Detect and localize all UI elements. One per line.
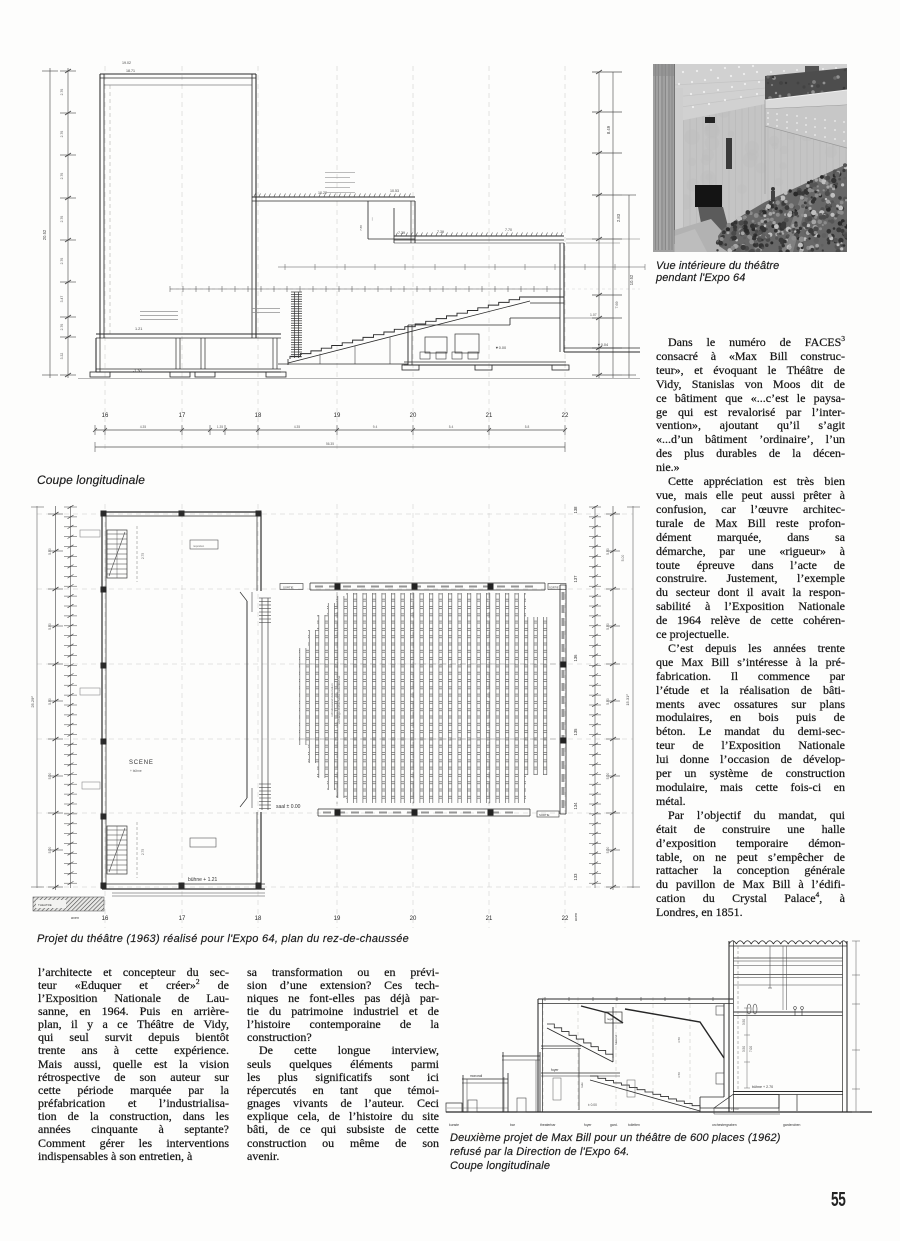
svg-text:138: 138 bbox=[573, 506, 578, 514]
svg-text:5.00: 5.00 bbox=[621, 555, 625, 562]
svg-text:3.50: 3.50 bbox=[742, 1046, 746, 1052]
svg-text:20: 20 bbox=[410, 916, 417, 922]
svg-text:5.00: 5.00 bbox=[48, 623, 52, 630]
svg-text:19: 19 bbox=[334, 413, 341, 419]
svg-text:9.4: 9.4 bbox=[373, 425, 378, 429]
svg-text:5.8: 5.8 bbox=[525, 425, 530, 429]
svg-text:5.00: 5.00 bbox=[48, 698, 52, 705]
svg-text:1.21: 1.21 bbox=[135, 327, 142, 331]
svg-text:orchestergraben: orchestergraben bbox=[712, 1123, 737, 1127]
svg-text:bühne + 1.21: bühne + 1.21 bbox=[188, 877, 218, 883]
svg-text:18: 18 bbox=[255, 916, 262, 922]
svg-text:SORTIE: SORTIE bbox=[539, 813, 549, 817]
svg-text:requisiten: requisiten bbox=[193, 544, 205, 548]
svg-text:25.29²: 25.29² bbox=[30, 696, 35, 708]
svg-text:135: 135 bbox=[573, 728, 578, 736]
svg-text:monorail: monorail bbox=[470, 1074, 483, 1078]
svg-text:5.00: 5.00 bbox=[606, 847, 610, 854]
svg-text:+ bühne: + bühne bbox=[130, 769, 142, 773]
svg-text:SORTIE: SORTIE bbox=[283, 586, 293, 590]
svg-text:17: 17 bbox=[179, 916, 186, 922]
svg-text:talw: talw bbox=[580, 1082, 584, 1088]
svg-text:4.35: 4.35 bbox=[140, 425, 146, 429]
svg-text:5.00: 5.00 bbox=[606, 773, 610, 780]
svg-text:56.35: 56.35 bbox=[326, 442, 334, 446]
svg-text:18.71: 18.71 bbox=[126, 69, 135, 73]
svg-text:foyer: foyer bbox=[584, 1123, 592, 1127]
svg-text:kunste: kunste bbox=[449, 1123, 459, 1127]
svg-text:1.07: 1.07 bbox=[590, 313, 597, 317]
svg-text:8.49: 8.49 bbox=[606, 125, 611, 134]
svg-text:10.52: 10.52 bbox=[629, 274, 634, 285]
svg-text:± 0.00: ± 0.00 bbox=[588, 1103, 597, 1107]
svg-text:falwand: falwand bbox=[614, 1035, 618, 1045]
svg-text:5.00: 5.00 bbox=[606, 698, 610, 705]
svg-text:2.75: 2.75 bbox=[141, 849, 145, 855]
svg-text:SORTIE: SORTIE bbox=[549, 586, 559, 590]
svg-text:2.75: 2.75 bbox=[141, 553, 145, 559]
svg-text:22: 22 bbox=[562, 413, 569, 419]
svg-text:axen: axen bbox=[71, 916, 79, 920]
svg-text:19: 19 bbox=[334, 916, 341, 922]
svg-text:20: 20 bbox=[410, 413, 417, 419]
svg-text:7.39: 7.39 bbox=[398, 231, 405, 235]
svg-text:5.00: 5.00 bbox=[48, 773, 52, 780]
svg-text:133: 133 bbox=[573, 873, 578, 881]
svg-text:THEATRE: THEATRE bbox=[38, 903, 52, 907]
svg-text:4.35: 4.35 bbox=[294, 425, 300, 429]
svg-text:17: 17 bbox=[179, 413, 186, 419]
svg-text:theaterbar: theaterbar bbox=[540, 1123, 556, 1127]
svg-text:7.88: 7.88 bbox=[359, 225, 363, 231]
svg-text:2.76: 2.76 bbox=[60, 173, 64, 180]
svg-text:20.52: 20.52 bbox=[42, 229, 47, 240]
svg-text:5.4: 5.4 bbox=[449, 425, 454, 429]
svg-text:10.53: 10.53 bbox=[390, 189, 399, 193]
svg-text:2.76: 2.76 bbox=[60, 216, 64, 223]
svg-text:toiletten: toiletten bbox=[628, 1123, 640, 1127]
svg-text:gard.: gard. bbox=[610, 1123, 618, 1127]
svg-text:axen: axen bbox=[574, 913, 578, 921]
svg-text:10.22: 10.22 bbox=[318, 191, 327, 195]
svg-text:▼0.04: ▼0.04 bbox=[597, 343, 608, 347]
svg-text:15.31²: 15.31² bbox=[625, 694, 630, 706]
svg-text:7.70: 7.70 bbox=[505, 228, 512, 232]
svg-text:▼0.00: ▼0.00 bbox=[495, 346, 506, 350]
svg-text:19.02: 19.02 bbox=[122, 61, 131, 65]
svg-text:5.00: 5.00 bbox=[48, 847, 52, 854]
svg-text:7.69: 7.69 bbox=[615, 302, 619, 309]
svg-text:3.50: 3.50 bbox=[742, 1019, 746, 1025]
svg-text:7.39: 7.39 bbox=[437, 230, 444, 234]
svg-text:21: 21 bbox=[486, 413, 493, 419]
svg-text:5.00: 5.00 bbox=[48, 548, 52, 555]
svg-text:3.50: 3.50 bbox=[677, 1072, 681, 1078]
svg-text:bar: bar bbox=[510, 1123, 516, 1127]
svg-text:2.76: 2.76 bbox=[60, 324, 64, 331]
svg-text:136: 136 bbox=[573, 654, 578, 662]
svg-text:bühne + 2.70: bühne + 2.70 bbox=[752, 1085, 773, 1089]
svg-text:2.76: 2.76 bbox=[60, 89, 64, 96]
svg-text:foyer: foyer bbox=[551, 1068, 559, 1072]
svg-text:2.76: 2.76 bbox=[60, 258, 64, 265]
svg-text:1.35: 1.35 bbox=[217, 425, 223, 429]
svg-text:22: 22 bbox=[562, 916, 569, 922]
svg-text:garderoben: garderoben bbox=[783, 1123, 800, 1127]
svg-text:21: 21 bbox=[486, 916, 493, 922]
svg-text:3.50: 3.50 bbox=[677, 1037, 681, 1043]
svg-text:2.83: 2.83 bbox=[616, 213, 621, 222]
svg-text:+0.00: +0.00 bbox=[731, 1107, 739, 1111]
svg-text:16: 16 bbox=[102, 413, 109, 419]
svg-text:▏: ▏ bbox=[371, 217, 374, 221]
svg-text:2.76: 2.76 bbox=[60, 131, 64, 138]
svg-text:SCENE: SCENE bbox=[129, 760, 154, 766]
svg-text:saal ± 0.00: saal ± 0.00 bbox=[276, 804, 301, 810]
svg-text:3.32: 3.32 bbox=[60, 353, 64, 360]
svg-text:7.00: 7.00 bbox=[749, 1046, 753, 1052]
svg-text:134: 134 bbox=[573, 802, 578, 810]
svg-text:5.00: 5.00 bbox=[606, 623, 610, 630]
svg-text:16: 16 bbox=[102, 916, 109, 922]
svg-text:137: 137 bbox=[573, 575, 578, 583]
svg-text:3.47: 3.47 bbox=[60, 296, 64, 303]
svg-text:5.00: 5.00 bbox=[606, 548, 610, 555]
svg-text:18: 18 bbox=[255, 413, 262, 419]
